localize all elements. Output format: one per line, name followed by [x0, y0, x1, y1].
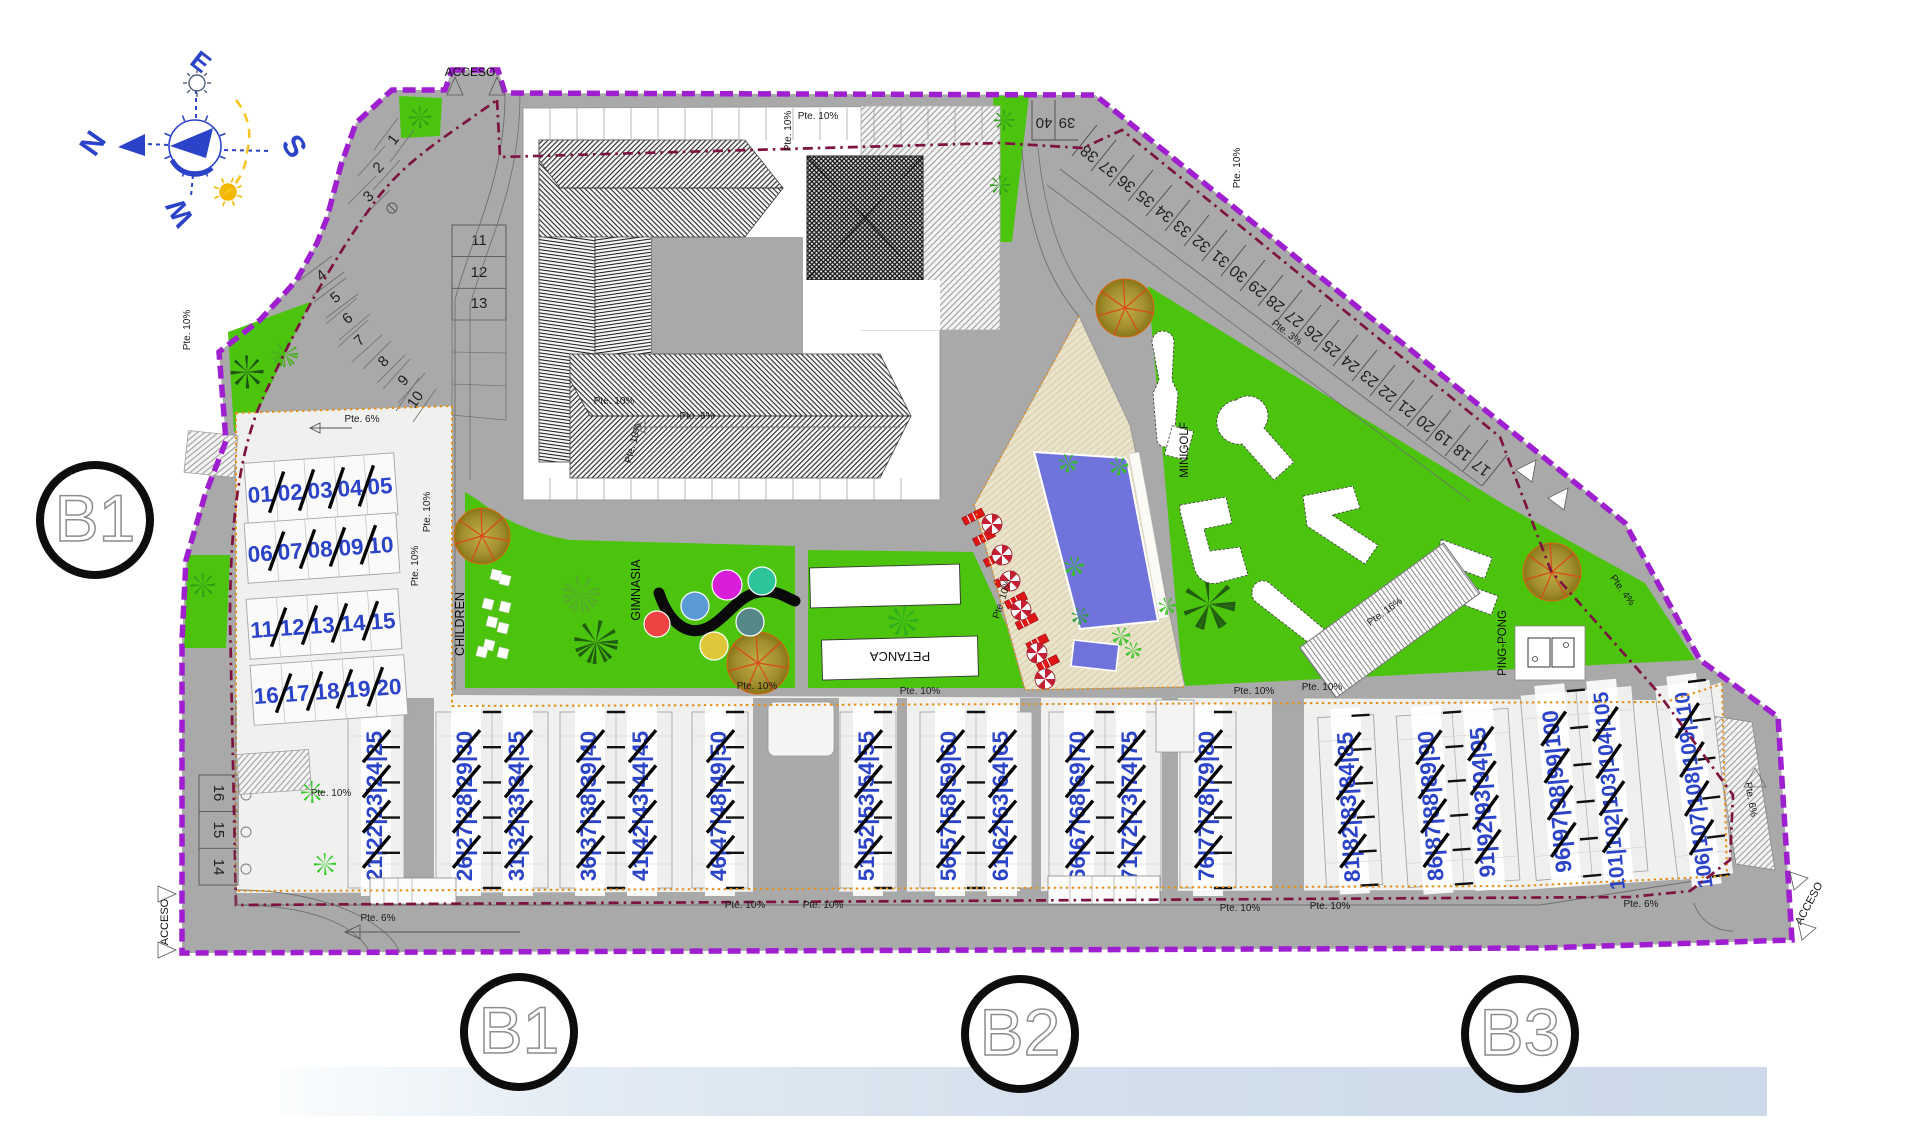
svg-text:Pte. 10%: Pte. 10% [1302, 682, 1343, 693]
svg-text:ACCESO: ACCESO [445, 65, 496, 79]
svg-text:13: 13 [471, 295, 488, 312]
svg-text:Pte. 10%: Pte. 10% [1234, 686, 1275, 697]
svg-text:16: 16 [253, 682, 280, 709]
svg-text:61|62|63|64|65: 61|62|63|64|65 [988, 731, 1013, 881]
svg-text:01: 01 [247, 481, 274, 508]
svg-text:15: 15 [210, 822, 227, 839]
svg-text:06: 06 [247, 540, 274, 567]
svg-text:Pte. 10%: Pte. 10% [783, 111, 794, 152]
svg-text:11: 11 [471, 232, 487, 249]
svg-text:12: 12 [471, 264, 488, 281]
svg-text:Pte. 10%: Pte. 10% [422, 492, 433, 533]
svg-text:66|67|68|69|70: 66|67|68|69|70 [1065, 731, 1090, 881]
svg-text:14: 14 [210, 859, 227, 876]
svg-text:PETANCA: PETANCA [869, 649, 930, 664]
svg-text:Pte. 10%: Pte. 10% [311, 788, 352, 799]
svg-text:39: 39 [1059, 114, 1076, 131]
svg-text:41|42|43|44|45: 41|42|43|44|45 [628, 731, 653, 881]
svg-text:B1: B1 [55, 481, 136, 555]
svg-text:Pte. 10%: Pte. 10% [1232, 148, 1243, 189]
svg-text:PING-PONG: PING-PONG [1497, 610, 1509, 676]
svg-text:26|27|28|29|30: 26|27|28|29|30 [452, 731, 477, 881]
svg-text:GIMNASIA: GIMNASIA [629, 559, 643, 621]
svg-text:Pte. 10%: Pte. 10% [798, 111, 839, 122]
svg-text:Pte. 6%: Pte. 6% [679, 411, 714, 422]
svg-text:31|32|33|34|35: 31|32|33|34|35 [504, 731, 529, 881]
svg-text:51|52|53|54|55: 51|52|53|54|55 [854, 731, 879, 881]
svg-text:CHILDREN: CHILDREN [453, 592, 467, 656]
svg-text:ACCESO: ACCESO [159, 898, 171, 945]
svg-text:Pte. 10%: Pte. 10% [410, 546, 421, 587]
svg-text:B3: B3 [1480, 995, 1561, 1069]
svg-text:Pte. 6%: Pte. 6% [360, 913, 395, 924]
svg-text:36|37|38|39|40: 36|37|38|39|40 [576, 731, 601, 881]
svg-text:B2: B2 [980, 995, 1061, 1069]
svg-text:11: 11 [250, 616, 275, 643]
svg-text:Pte. 10%: Pte. 10% [182, 310, 193, 351]
svg-text:Pte. 10%: Pte. 10% [900, 686, 941, 697]
svg-text:76|77|78|79|80: 76|77|78|79|80 [1194, 731, 1219, 881]
svg-text:Pte. 10%: Pte. 10% [1220, 903, 1261, 914]
svg-text:40: 40 [1036, 114, 1053, 131]
svg-text:Pte. 6%: Pte. 6% [344, 414, 379, 425]
svg-text:56|57|58|59|60: 56|57|58|59|60 [936, 731, 961, 881]
svg-text:Pte. 6%: Pte. 6% [1623, 899, 1658, 910]
svg-text:MINIGOLF: MINIGOLF [1179, 422, 1191, 478]
svg-text:Pte. 10%: Pte. 10% [725, 900, 766, 911]
svg-text:Pte. 10%: Pte. 10% [594, 396, 635, 407]
svg-text:21|22|23|24|25: 21|22|23|24|25 [362, 731, 387, 881]
svg-text:Pte. 10%: Pte. 10% [803, 900, 844, 911]
svg-text:46|47|48|49|50: 46|47|48|49|50 [706, 731, 731, 881]
svg-text:Pte. 10%: Pte. 10% [1310, 901, 1351, 912]
svg-text:B1: B1 [479, 993, 560, 1067]
svg-text:16: 16 [210, 785, 227, 802]
svg-text:71|72|73|74|75: 71|72|73|74|75 [1117, 731, 1142, 881]
svg-text:Pte. 10%: Pte. 10% [737, 681, 778, 692]
